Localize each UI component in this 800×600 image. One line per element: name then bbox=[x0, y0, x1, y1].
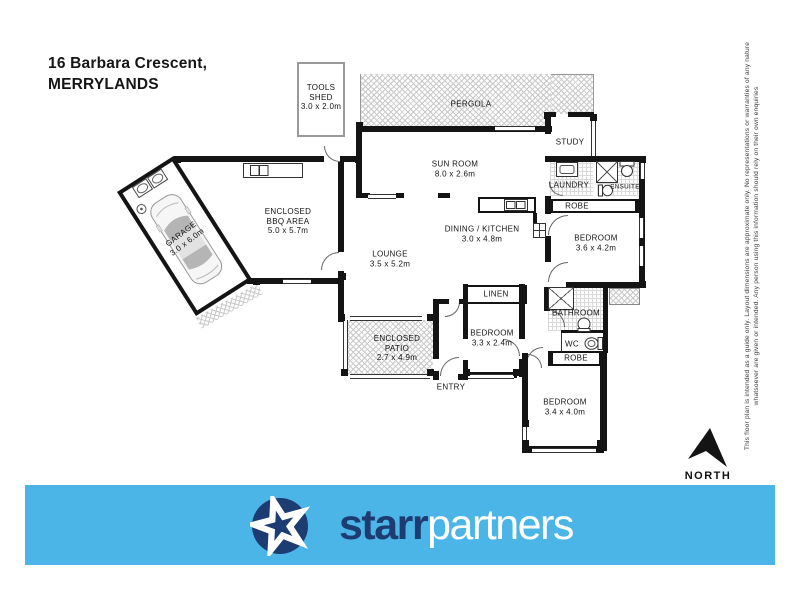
corner-block bbox=[341, 369, 348, 376]
room-label-robe-bottom: ROBE bbox=[564, 353, 588, 363]
room-label-text: LAUNDRY bbox=[549, 180, 589, 190]
brand-banner: starrpartners bbox=[25, 485, 775, 565]
wall bbox=[519, 284, 525, 304]
room-label-wc: WC bbox=[565, 339, 579, 349]
wall bbox=[519, 303, 525, 339]
wall bbox=[463, 303, 468, 339]
window bbox=[350, 374, 430, 379]
room-label-text: BEDROOM bbox=[574, 234, 617, 244]
room-label-text: BEDROOM bbox=[543, 398, 586, 408]
room-label-patio: ENCLOSEDPATIO2.7 x 4.9m bbox=[374, 334, 420, 363]
window bbox=[368, 194, 396, 199]
door-arc bbox=[321, 252, 339, 270]
corner-block bbox=[544, 112, 551, 119]
corner-block bbox=[590, 114, 597, 121]
brand-name-bold: starr bbox=[339, 501, 427, 549]
wall bbox=[522, 353, 528, 427]
wall bbox=[603, 287, 608, 353]
disclaimer-text: This floor plan is intended as a guide o… bbox=[743, 21, 761, 471]
room-label-tools-shed: TOOLSSHED3.0 x 2.0m bbox=[301, 83, 341, 112]
corner-block bbox=[463, 369, 470, 376]
brand-name-light: partners bbox=[427, 501, 573, 549]
room-label-sun-room: SUN ROOM8.0 x 2.6m bbox=[432, 160, 478, 179]
window bbox=[591, 120, 596, 156]
room-label-linen: LINEN bbox=[483, 289, 508, 299]
address-line1: 16 Barbara Crescent, bbox=[48, 53, 207, 74]
washing-machine-icon bbox=[556, 162, 578, 177]
room-label-dining-kitchen: DINING / KITCHEN3.0 x 4.8m bbox=[445, 225, 520, 244]
window bbox=[468, 374, 514, 379]
window bbox=[532, 448, 596, 453]
wall bbox=[545, 236, 551, 262]
corner-block bbox=[339, 273, 346, 280]
room-label-text: 3.3 x 2.4m bbox=[470, 338, 513, 348]
room-label-text: 2.7 x 4.9m bbox=[374, 353, 420, 363]
door-arc bbox=[548, 262, 568, 282]
wall bbox=[438, 193, 450, 198]
room-label-robe-top: ROBE bbox=[565, 201, 589, 211]
window bbox=[639, 218, 644, 238]
corner-block bbox=[600, 420, 607, 427]
robe-cabinet-top bbox=[548, 199, 640, 213]
bbq-sink-icon bbox=[250, 165, 269, 176]
wall bbox=[545, 196, 551, 214]
room-label-text: 3.0 x 2.0m bbox=[301, 102, 341, 112]
room-label-bedroom-rear: BEDROOM3.6 x 4.2m bbox=[574, 234, 617, 253]
window bbox=[495, 126, 535, 131]
disclaimer-line1: This floor plan is intended as a guide o… bbox=[743, 21, 752, 471]
window bbox=[640, 163, 645, 179]
room-label-text: TOOLS bbox=[301, 83, 341, 93]
kitchen-sink-icon bbox=[504, 199, 528, 211]
room-label-laundry: LAUNDRY bbox=[549, 180, 589, 190]
north-arrow-icon bbox=[680, 424, 732, 472]
ensuite-shower-icon bbox=[596, 161, 618, 183]
window bbox=[343, 320, 348, 372]
room-label-text: 3.6 x 4.2m bbox=[574, 243, 617, 253]
window bbox=[639, 246, 644, 266]
floor-plan-page: 16 Barbara Crescent, MERRYLANDS bbox=[0, 0, 800, 600]
room-label-text: LINEN bbox=[483, 289, 508, 299]
wall bbox=[396, 193, 404, 198]
corner-block bbox=[522, 440, 529, 447]
wall bbox=[174, 156, 324, 162]
room-label-bedroom-mid: BEDROOM3.3 x 2.4m bbox=[470, 329, 513, 348]
room-label-ensuite: ENSUITE bbox=[610, 184, 639, 191]
room-label-text: BEDROOM bbox=[470, 329, 513, 339]
corner-block bbox=[338, 314, 345, 321]
room-label-text: ROBE bbox=[565, 201, 589, 211]
disclaimer-line2: whatsoever are given or intended. Any pe… bbox=[752, 21, 761, 471]
brand-name: starrpartners bbox=[339, 502, 573, 548]
corner-block bbox=[174, 156, 181, 163]
door-arc bbox=[548, 215, 568, 235]
ensuite-basin-icon bbox=[619, 161, 635, 178]
corner-block bbox=[639, 281, 646, 288]
address-line2: MERRYLANDS bbox=[48, 74, 207, 95]
door-arc bbox=[445, 302, 460, 317]
room-label-text: ROBE bbox=[564, 353, 588, 363]
window bbox=[350, 316, 422, 321]
bathroom-shower-icon bbox=[548, 287, 574, 310]
room-label-text: ENSUITE bbox=[610, 184, 639, 191]
room-label-text: STUDY bbox=[556, 137, 585, 147]
door-arc bbox=[324, 146, 340, 162]
wc-toilet-icon bbox=[584, 336, 603, 351]
step-hatch bbox=[609, 288, 640, 305]
water-heater-icon bbox=[134, 201, 149, 216]
room-label-text: 5.0 x 5.7m bbox=[265, 226, 311, 236]
stove-icon bbox=[533, 223, 546, 238]
starr-logo-icon bbox=[250, 496, 310, 556]
corner-block bbox=[427, 314, 434, 321]
room-label-text: ENCLOSED bbox=[374, 334, 420, 344]
north-label: NORTH bbox=[678, 470, 738, 482]
corner-block bbox=[522, 420, 529, 427]
room-label-text: 3.0 x 4.8m bbox=[445, 234, 520, 244]
corner-block bbox=[253, 278, 260, 285]
room-label-study: STUDY bbox=[556, 137, 585, 147]
corner-block bbox=[356, 122, 363, 129]
bathroom-basin-icon bbox=[575, 317, 593, 332]
room-label-text: 3.5 x 5.2m bbox=[370, 259, 410, 269]
room-label-text: 3.4 x 4.0m bbox=[543, 407, 586, 417]
room-label-text: SHED bbox=[301, 92, 341, 102]
room-label-bathroom: BATHROOM bbox=[552, 308, 600, 318]
room-label-text: BATHROOM bbox=[552, 308, 600, 318]
corner-block bbox=[355, 156, 362, 163]
corner-block bbox=[597, 440, 604, 447]
room-label-text: ENTRY bbox=[437, 382, 465, 392]
room-label-text: ENCLOSED bbox=[265, 207, 311, 217]
window bbox=[283, 279, 311, 284]
room-label-bbq: ENCLOSEDBBQ AREA5.0 x 5.7m bbox=[265, 207, 311, 236]
wall bbox=[433, 299, 439, 359]
room-label-text: WC bbox=[565, 339, 579, 349]
room-label-text: PATIO bbox=[374, 343, 420, 353]
corner-block bbox=[513, 369, 520, 376]
wall bbox=[600, 353, 607, 451]
study-floor bbox=[546, 114, 593, 158]
room-label-text: LOUNGE bbox=[370, 250, 410, 260]
room-label-text: BBQ AREA bbox=[265, 216, 311, 226]
corner-block bbox=[427, 369, 434, 376]
wall bbox=[463, 284, 468, 304]
wall bbox=[338, 162, 344, 252]
door-arc bbox=[440, 357, 459, 376]
room-label-bedroom-front: BEDROOM3.4 x 4.0m bbox=[543, 398, 586, 417]
room-label-text: 8.0 x 2.6m bbox=[432, 169, 478, 179]
room-label-pergola: PERGOLA bbox=[451, 99, 492, 109]
property-address: 16 Barbara Crescent, MERRYLANDS bbox=[48, 53, 207, 95]
room-label-text: DINING / KITCHEN bbox=[445, 225, 520, 235]
room-label-text: SUN ROOM bbox=[432, 160, 478, 170]
room-label-lounge: LOUNGE3.5 x 5.2m bbox=[370, 250, 410, 269]
corner-block bbox=[639, 156, 646, 163]
room-label-entry: ENTRY bbox=[437, 382, 465, 392]
room-label-text: PERGOLA bbox=[451, 99, 492, 109]
